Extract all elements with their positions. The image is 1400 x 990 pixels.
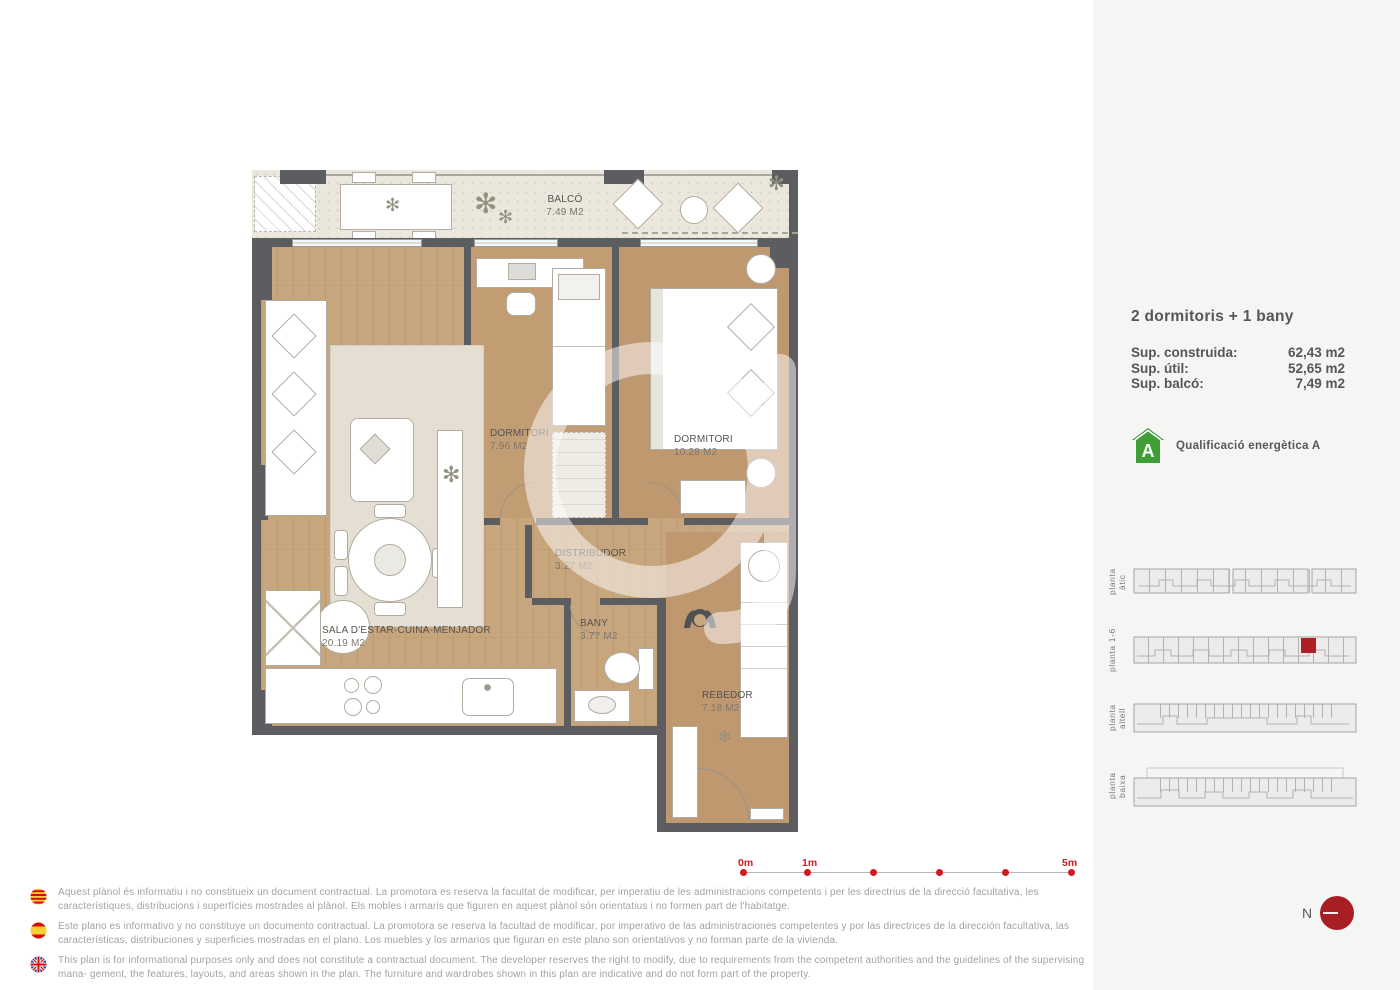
highlighted-unit: [1301, 638, 1316, 653]
table-centerpiece: [374, 544, 406, 576]
plant-icon: ✻: [385, 196, 400, 214]
north-indicator: N: [1302, 896, 1362, 932]
room-name: BANY: [580, 618, 618, 631]
room-area: 7.18 M2: [702, 703, 753, 716]
blanket-line: [553, 346, 605, 347]
north-letter: N: [1302, 905, 1312, 921]
floor-row-planta-1-6[interactable]: planta 1-6: [1093, 628, 1400, 672]
dresser: [680, 480, 746, 514]
window: [292, 239, 422, 247]
energy-house-icon: A: [1131, 427, 1165, 464]
room-name: DORMITORI: [490, 428, 549, 441]
floor-thumbnail-baixa[interactable]: [1133, 766, 1357, 810]
scale-dot: [870, 869, 877, 876]
floor-label: planta baixa: [1107, 764, 1127, 808]
disclaimers: Aquest plànol és informatiu i no constit…: [30, 886, 1088, 988]
wall-below-bedrooms: [536, 518, 648, 525]
wall-bedroom-separator: [612, 247, 619, 518]
surface-row: Sup. construida: 62,43 m2: [1131, 345, 1345, 361]
room-name: BALCÓ: [520, 194, 610, 207]
disclaimer-catalan: Aquest plànol és informatiu i no constit…: [30, 886, 1088, 913]
shelf-unit: [437, 430, 463, 608]
hob-burner: [344, 678, 359, 693]
hob-burner: [366, 700, 380, 714]
north-compass-icon: [1320, 896, 1354, 930]
energy-rating: A Qualificació energètica A: [1131, 427, 1320, 464]
floor-row-baixa[interactable]: planta baixa: [1093, 764, 1400, 808]
scale-dot: [1068, 869, 1075, 876]
floor-row-atic[interactable]: planta àtic: [1093, 560, 1400, 604]
disclaimer-spanish: Este plano es informativo y no constituy…: [30, 920, 1088, 947]
wall-bottom-left: [252, 726, 666, 735]
scale-bar: 0m 1m 5m: [740, 857, 1075, 879]
room-name: DISTRIBUDOR: [555, 548, 626, 561]
desk-chair: [506, 292, 536, 316]
balcony-chair: [412, 172, 436, 183]
wall-bottom-right: [657, 823, 798, 832]
plant-icon: ✻: [768, 174, 785, 194]
spain-flag-icon: [30, 922, 47, 939]
scale-dot: [1002, 869, 1009, 876]
balcony-edge: [312, 174, 798, 176]
room-name: DORMITORI: [674, 434, 733, 447]
catalonia-flag-icon: [30, 888, 47, 905]
scale-label-5m: 5m: [1062, 857, 1077, 869]
radiator: [750, 808, 784, 820]
plant-icon: ✻: [474, 190, 497, 218]
pillow: [558, 274, 600, 300]
floor-plan-page: { "sidebar": { "title": "2 dormitoris + …: [0, 0, 1400, 990]
sidebar: 2 dormitoris + 1 bany Sup. construida: 6…: [1093, 0, 1400, 990]
surface-row: Sup. balcó: 7,49 m2: [1131, 376, 1345, 392]
floor-thumbnail-1-6[interactable]: [1133, 630, 1357, 670]
window: [474, 239, 558, 247]
wall-distribudor-stub: [525, 525, 532, 598]
energy-label: Qualificació energètica A: [1176, 440, 1320, 452]
hob-burner: [364, 676, 382, 694]
scale-dot: [804, 869, 811, 876]
energy-letter: A: [1142, 441, 1155, 461]
balcony-chair: [352, 172, 376, 183]
scale-dot: [936, 869, 943, 876]
surface-label: Sup. construida:: [1131, 345, 1238, 361]
plant-icon: ✻: [718, 730, 731, 746]
room-label-bany: BANY 3.77 M2: [580, 618, 618, 643]
room-area: 3.27 M2: [555, 561, 626, 574]
floor-label: planta altell: [1107, 696, 1127, 740]
uk-flag-icon: [30, 956, 47, 973]
wall-rebedor-left: [657, 598, 666, 832]
room-area: 20.19 M2: [322, 638, 491, 651]
nightstand: [746, 254, 776, 284]
surface-table: Sup. construida: 62,43 m2 Sup. útil: 52,…: [1131, 345, 1345, 392]
dining-chair: [334, 566, 348, 596]
shelves: [741, 600, 787, 690]
wall-pier: [280, 170, 326, 184]
listing-title: 2 dormitoris + 1 bany: [1131, 308, 1294, 326]
toilet-bowl: [604, 652, 640, 684]
dining-chair: [374, 504, 406, 518]
floor-thumbnail-atic[interactable]: [1133, 562, 1357, 602]
room-label-dormitori-2: DORMITORI 10.28 M2: [674, 434, 733, 459]
north-needle: [1323, 912, 1338, 914]
person-icon: [680, 598, 720, 642]
disclaimer-text: This plan is for informational purposes …: [58, 954, 1088, 981]
room-area: 7.96 M2: [490, 441, 549, 454]
floor-row-altell[interactable]: planta altell: [1093, 696, 1400, 740]
laptop: [508, 263, 536, 280]
plant-icon: ✻: [498, 208, 513, 226]
wall-bany-left: [564, 598, 571, 726]
surface-value: 52,65 m2: [1288, 361, 1345, 377]
balcony-railing-dashed: [622, 232, 798, 234]
wall-balcony-right: [789, 170, 798, 247]
surface-value: 62,43 m2: [1288, 345, 1345, 361]
surface-label: Sup. balcó:: [1131, 376, 1204, 392]
plant-icon: ✻: [442, 464, 460, 486]
surface-row: Sup. útil: 52,65 m2: [1131, 361, 1345, 377]
nightstand: [746, 458, 776, 488]
sink-tap: [484, 684, 491, 691]
dining-chair: [374, 602, 406, 616]
floor-label: planta àtic: [1107, 560, 1127, 604]
window: [640, 239, 758, 247]
surface-label: Sup. útil:: [1131, 361, 1189, 377]
floor-label: planta 1-6: [1107, 628, 1117, 672]
room-area: 3.77 M2: [580, 631, 618, 644]
sink-basin: [588, 696, 616, 714]
room-name: REBEDOR: [702, 690, 753, 703]
washing-machine-icon: [748, 550, 780, 582]
dining-chair: [334, 530, 348, 560]
hob-burner: [344, 698, 362, 716]
bed-headboard: [651, 289, 663, 449]
kitchen-island: [265, 590, 321, 666]
scale-dot: [740, 869, 747, 876]
wall-pier: [252, 238, 272, 300]
room-label-sala: SALA D'ESTAR-CUINA-MENJADOR 20.19 M2: [322, 625, 491, 650]
room-label-rebedor: REBEDOR 7.18 M2: [702, 690, 753, 715]
room-label-dormitori-1: DORMITORI 7.96 M2: [490, 428, 549, 453]
wall-bany-top: [600, 598, 666, 605]
disclaimer-text: Aquest plànol és informatiu i no constit…: [58, 886, 1088, 913]
scale-line: [740, 872, 1075, 873]
console-table: [672, 726, 698, 818]
room-label-balco: BALCÓ 7.49 M2: [520, 194, 610, 219]
neighbor-balcony-hatch: [254, 176, 316, 232]
floor-thumbnail-altell[interactable]: [1133, 698, 1357, 738]
room-area: 7.49 M2: [520, 207, 610, 220]
floor-plan: ✻ ✻ ✻ ✻ ✻: [252, 170, 798, 835]
coffee-table: [350, 418, 414, 502]
balcony-side-table: [680, 196, 708, 224]
disclaimer-english: This plan is for informational purposes …: [30, 954, 1088, 981]
wall-right: [789, 238, 798, 832]
surface-value: 7,49 m2: [1295, 376, 1345, 392]
wardrobe: [552, 432, 606, 518]
wall-below-bedrooms: [684, 518, 798, 525]
scale-label-0m: 0m: [738, 857, 753, 869]
disclaimer-text: Este plano es informativo y no constituy…: [58, 920, 1088, 947]
room-area: 10.28 M2: [674, 447, 733, 460]
scale-label-1m: 1m: [802, 857, 817, 869]
toilet-tank: [638, 648, 654, 690]
room-label-distribudor: DISTRIBUDOR 3.27 M2: [555, 548, 626, 573]
room-name: SALA D'ESTAR-CUINA-MENJADOR: [322, 625, 491, 638]
